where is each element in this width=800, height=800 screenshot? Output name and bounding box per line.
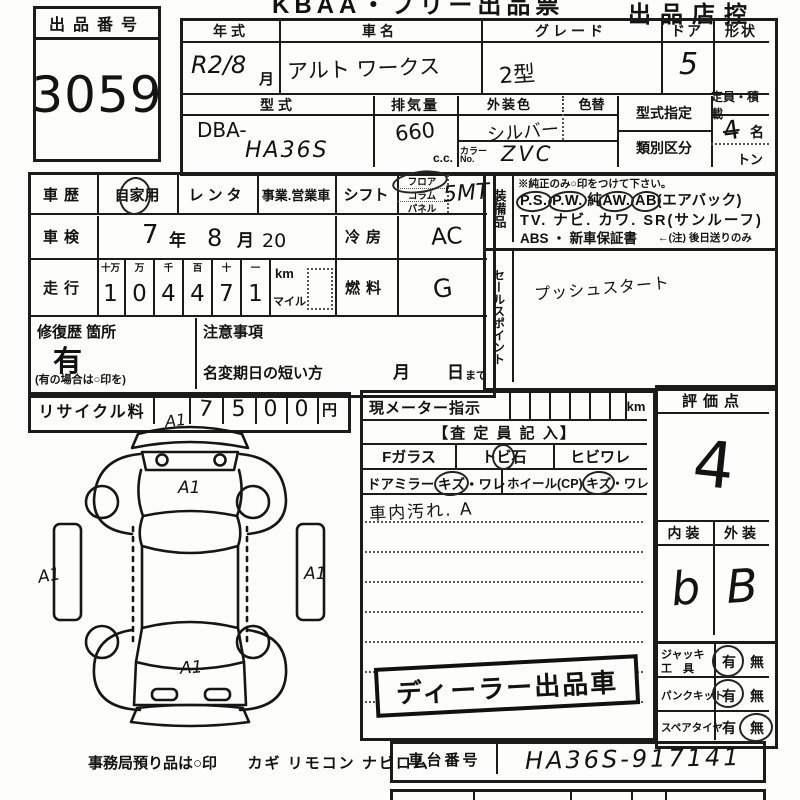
- model-value: HA36S: [245, 138, 329, 163]
- damage-mark: A1: [36, 564, 62, 588]
- year-value: R2/8: [191, 51, 246, 79]
- displacement-unit: c.c.: [433, 151, 453, 165]
- stone-chip-circled: ビ: [496, 446, 511, 467]
- ext-color-label: 外装色: [457, 96, 562, 112]
- auction-sheet: KBAA・フリー出品票 出品店控 出品番号 3059 年式 R2/8 月 車名 …: [0, 0, 800, 800]
- inspection-label: 車検: [31, 216, 99, 258]
- fglass-label: Fガラス: [363, 445, 457, 468]
- form-title: KBAA・フリー出品票: [272, 0, 564, 20]
- evaluation-box: 評価点 4 内装 外装 b B: [655, 385, 778, 644]
- mirror-scratch-circled: キズ: [438, 473, 465, 493]
- damage-mark: A1: [304, 564, 326, 584]
- chassis-value: HA36S-917141: [525, 743, 742, 775]
- mileage-digit: 7: [213, 274, 240, 314]
- car-use-rental: レンタ: [177, 175, 259, 213]
- repair-note: (有の場合は○印を): [35, 371, 126, 387]
- shift-column: コラム: [397, 189, 447, 203]
- sales-point-value: プッシュスタート: [533, 269, 671, 305]
- equip-aw: AW.: [602, 193, 630, 209]
- auction-number-box: 出品番号 3059: [33, 6, 161, 162]
- partial-table: [390, 789, 766, 800]
- equip-line3: ABS ・ 新車保証書: [520, 227, 637, 247]
- grade-label: グレード: [481, 21, 661, 43]
- auction-number-value: 3059: [36, 40, 158, 150]
- model-prefix: DBA-: [197, 118, 247, 142]
- exterior-label: 外装: [715, 522, 769, 544]
- jack-no: 無: [750, 652, 764, 672]
- color-change-label: 色替: [562, 96, 619, 112]
- car-use-business: 事業.営業車: [257, 175, 337, 213]
- ac-label: 冷房: [335, 216, 399, 258]
- equip-ps: P.S.: [520, 193, 548, 209]
- mileage-unit-mile: マイル: [273, 293, 306, 309]
- damage-mark: A1: [164, 410, 187, 431]
- name-change-label: 名変期日の短い方: [203, 362, 323, 383]
- car-diagram: [38, 412, 340, 752]
- capacity-label: 定員・積載: [711, 96, 769, 116]
- meter-unit: km: [625, 393, 647, 419]
- caution-label: 注意事項: [203, 321, 263, 342]
- tools-box: ジャッキ 工 具 有 無 パンクキット 有 無 スペアタイヤ 有 無: [655, 641, 778, 749]
- meter-label: 現メーター指示: [369, 397, 481, 418]
- kit-yes: 有: [722, 686, 736, 706]
- mileage-digit: 0: [126, 274, 153, 314]
- displacement-value: 660: [394, 117, 436, 145]
- damage-mark: A1: [178, 478, 200, 498]
- model-label: 型式: [183, 96, 373, 116]
- auction-number-label: 出品番号: [36, 9, 158, 40]
- interior-label: 内装: [658, 522, 715, 544]
- sales-point-box: セールスポイント プッシュスタート: [483, 248, 778, 391]
- mileage-digit: 1: [97, 274, 124, 314]
- equip-airbag: (エアバック): [657, 193, 742, 209]
- color-no-value: ZVC: [501, 142, 553, 166]
- fuel-value: G: [431, 273, 454, 304]
- mirror-label: ドアミラー: [367, 477, 434, 492]
- shift-label: シフト: [335, 175, 399, 213]
- capacity-unit: 名: [750, 122, 764, 142]
- mileage-digit: 1: [242, 274, 269, 314]
- shift-panel: パネル: [397, 202, 447, 214]
- mileage-unit-km: km: [275, 266, 294, 281]
- equip-pw: P.W.: [552, 193, 583, 209]
- evaluation-score: 4: [653, 410, 774, 521]
- displacement-label: 排気量: [373, 96, 457, 116]
- interior-grade: b: [654, 545, 717, 630]
- evaluation-label: 評価点: [658, 388, 769, 414]
- kit-no: 無: [750, 686, 764, 706]
- wheel-scratch-circled: キズ: [586, 473, 611, 492]
- equipment-box: 装備品 ※純正のみ○印をつけて下さい。 P.S. P.W. 純AW. AB(エア…: [483, 172, 778, 251]
- fuel-label: 燃料: [335, 260, 399, 315]
- car-use-private: 自家用: [97, 175, 179, 213]
- mileage-label: 走行: [31, 260, 99, 315]
- car-use-label: 車歴: [31, 175, 99, 213]
- exterior-grade: B: [712, 544, 771, 628]
- shape-label: 形状: [713, 21, 769, 43]
- chassis-row: 車台番号 HA36S-917141: [390, 741, 766, 783]
- year-unit: 月: [259, 68, 274, 89]
- wheel-label: ホイール(CP): [507, 477, 583, 491]
- classification-label: 類別区分: [617, 132, 711, 165]
- jack-yes: 有: [722, 652, 736, 672]
- inspection-year: 7: [142, 220, 159, 250]
- equipment-label: 装備品: [486, 175, 514, 242]
- mileage-digit: 4: [155, 274, 182, 314]
- spare-no: 無: [750, 718, 764, 738]
- assessor-box: 現メーター指示 km 【査 定 員 記 入】 Fガラス ト ビ 石 ヒビワレ ド…: [360, 390, 656, 741]
- grade-value: 2型: [498, 56, 536, 90]
- assessor-header: 【査 定 員 記 入】: [363, 422, 647, 445]
- mileage-digit: 4: [184, 274, 211, 314]
- name-label: 車名: [279, 21, 481, 43]
- year-label: 年式: [183, 21, 279, 43]
- inspection-month: 8: [207, 224, 222, 252]
- history-table: 車歴 自家用 レンタ 事業.営業車 シフト フロア コラム パネル 5MT 車検…: [28, 172, 496, 398]
- spare-yes: 有: [722, 718, 736, 738]
- ton-unit: トン: [737, 149, 763, 168]
- equip-ab: AB: [635, 193, 657, 209]
- vehicle-table: 年式 R2/8 月 車名 アルト ワークス グレード 2型 ドア 5 形状: [180, 18, 778, 176]
- shift-floor: フロア: [397, 175, 447, 189]
- damage-mark: A1: [179, 657, 203, 679]
- type-designation-label: 型式指定: [617, 96, 711, 132]
- dealer-stamp: ディーラー出品車: [374, 654, 640, 718]
- crack-label: ヒビワレ: [553, 445, 647, 468]
- doors-value: 5: [679, 47, 698, 82]
- sales-point-label: セールスポイント: [486, 251, 514, 382]
- inspection-day: 20: [262, 230, 286, 252]
- office-items: カギ リモコン ナビロム: [248, 755, 430, 772]
- office-note: 事務局預り品は○印: [88, 755, 217, 772]
- ac-value: AC: [430, 223, 463, 251]
- name-value: アルト ワークス: [287, 50, 441, 85]
- doors-label: ドア: [661, 21, 713, 43]
